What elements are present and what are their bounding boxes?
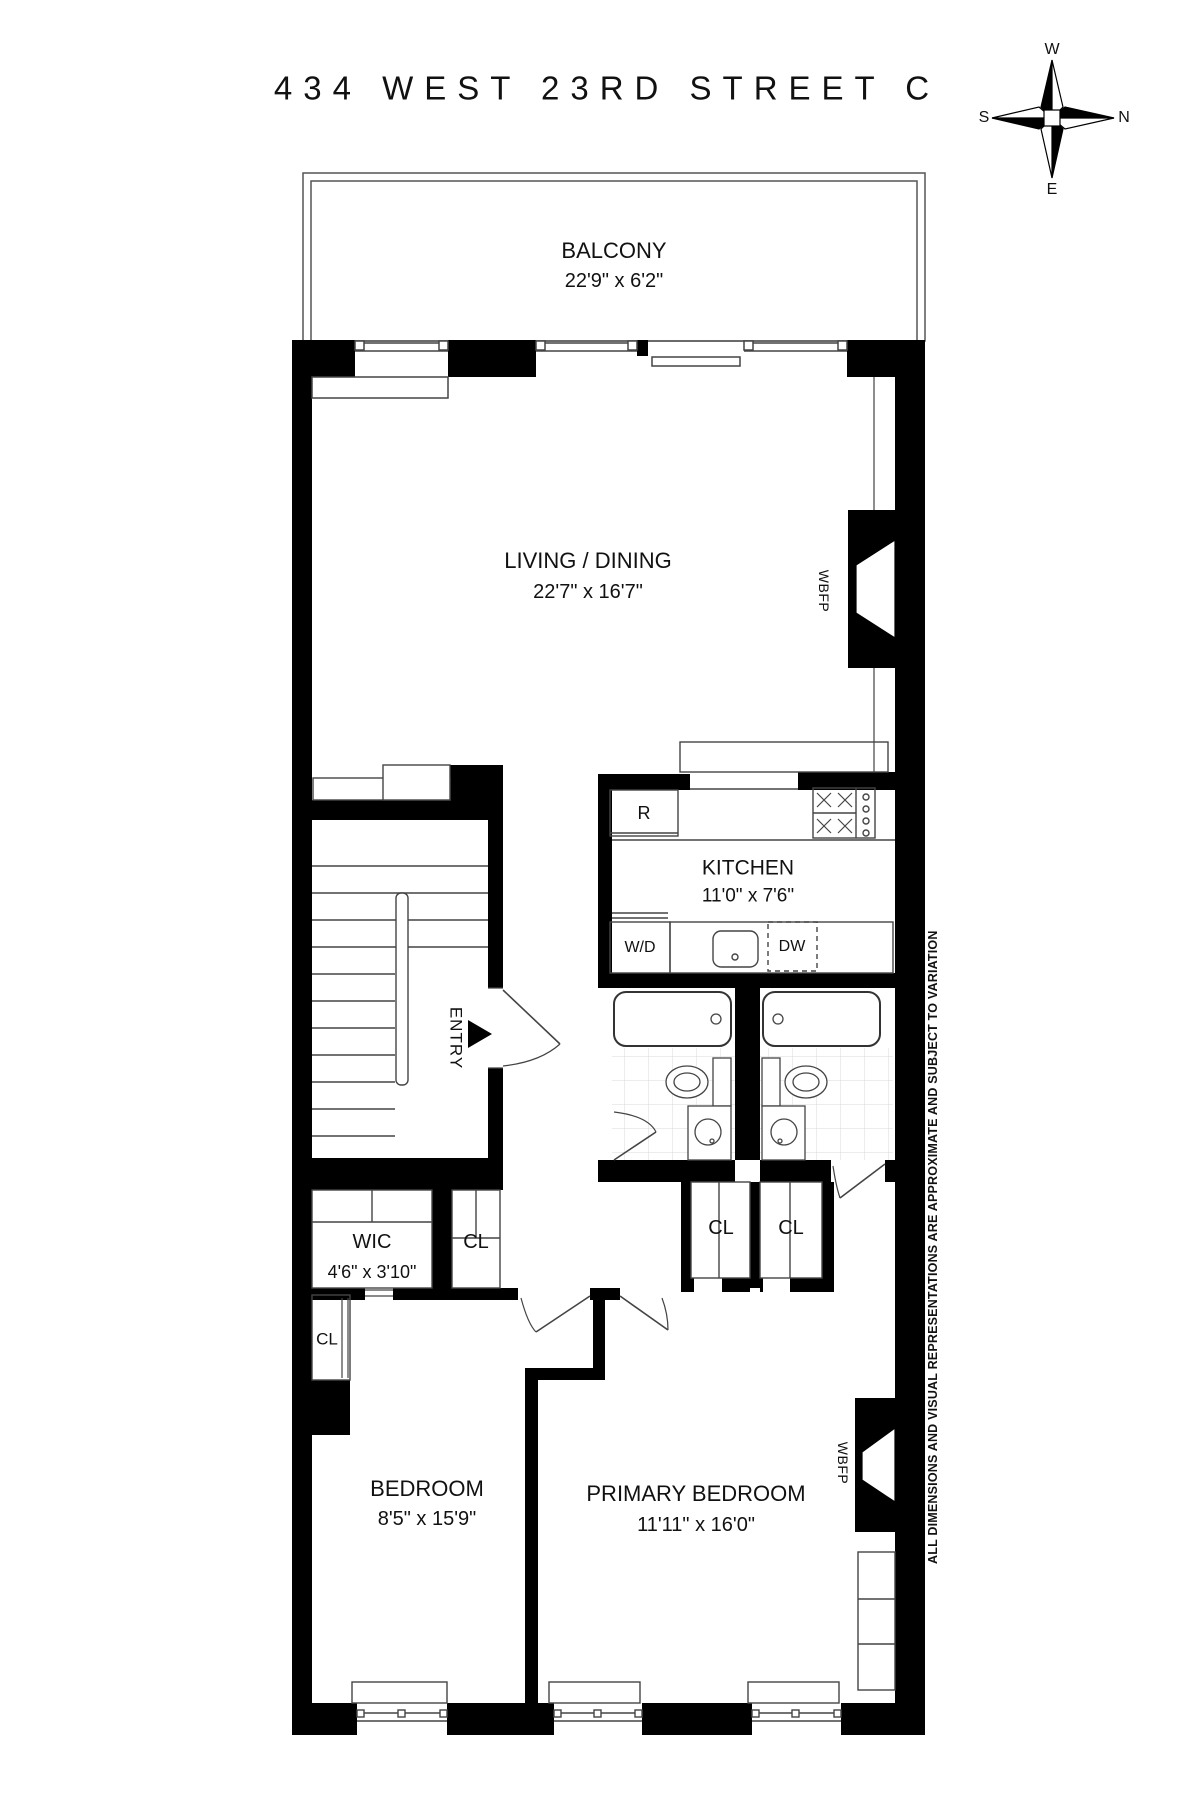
wic-dims: 4'6" x 3'10" [328, 1263, 417, 1281]
washer-dryer-label: W/D [624, 940, 655, 956]
vanity-left [688, 1106, 731, 1160]
compass-icon [992, 60, 1114, 178]
bedroom-dims: 8'5" x 15'9" [378, 1509, 477, 1529]
kitchen-dims: 11'0" x 7'6" [702, 887, 794, 906]
wbfp-living-label: WBFP [817, 570, 831, 612]
living-dining-dims: 22'7" x 16'7" [533, 582, 643, 602]
stove [813, 788, 875, 838]
wbfp-primary-label: WBFP [836, 1442, 850, 1484]
compass-south-label: S [979, 110, 990, 126]
refrigerator-label: R [638, 804, 651, 822]
bedroom-label: BEDROOM [370, 1478, 484, 1500]
kitchen-label: KITCHEN [702, 858, 794, 879]
living-dining-label: LIVING / DINING [504, 550, 671, 572]
balcony-label: BALCONY [561, 240, 666, 262]
balcony-dims: 22'9" x 6'2" [565, 271, 664, 291]
wic-label: WIC [353, 1232, 392, 1252]
dishwasher-label: DW [779, 939, 806, 955]
nook-closet-1-label: CL [708, 1218, 734, 1238]
fireplace-living [848, 510, 895, 668]
compass-north-label: N [1118, 110, 1130, 126]
floorplan-page: 434 WEST 23RD STREET C W S N E BALCONY 2… [0, 0, 1200, 1800]
hall-closet-label: CL [463, 1232, 489, 1252]
bottom-windows [352, 1682, 841, 1721]
entry-arrow-icon [468, 1020, 492, 1048]
nook-closet-2-label: CL [778, 1218, 804, 1238]
left-closet-label: CL [316, 1331, 338, 1348]
entry-door [503, 990, 560, 1066]
disclaimer-text: ALL DIMENSIONS AND VISUAL REPRESENTATION… [926, 1124, 940, 1564]
compass-east-label: E [1047, 182, 1058, 198]
builtin-closet [858, 1552, 895, 1690]
compass-west-label: W [1044, 42, 1059, 58]
page-title: 434 WEST 23RD STREET C [274, 72, 940, 105]
primary-bedroom-label: PRIMARY BEDROOM [586, 1483, 805, 1505]
entry-label: ENTRY [448, 1007, 465, 1069]
stairs [312, 765, 503, 1136]
primary-bedroom-dims: 11'11" x 16'0" [637, 1515, 755, 1535]
kitchen-sink [713, 931, 758, 967]
vanity-right [762, 1106, 805, 1160]
fireplace-primary [855, 1398, 895, 1532]
